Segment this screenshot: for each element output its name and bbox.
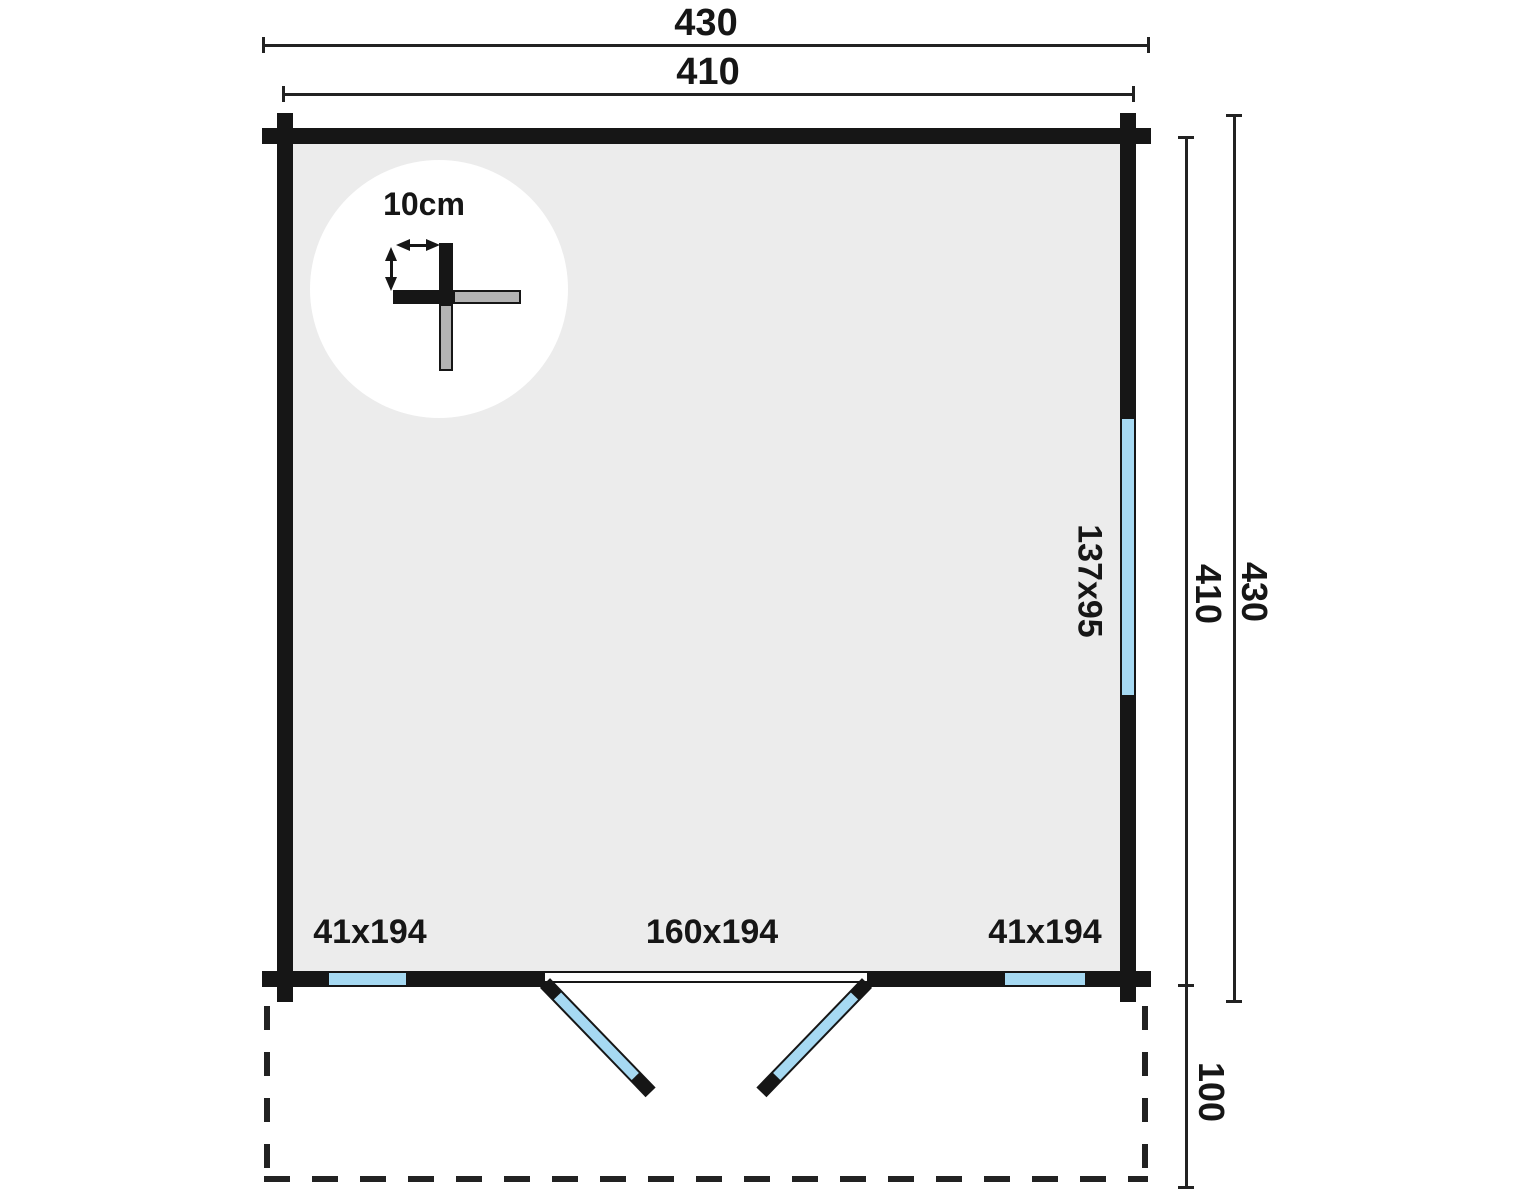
- detail-arrow-vertical: [385, 247, 398, 291]
- detail-log-gray-vertical: [439, 304, 453, 371]
- door-leaf-right-glass: [773, 992, 858, 1080]
- dim-top-outer-line: [263, 44, 1149, 47]
- terrace-outline-right: [1142, 1006, 1148, 1182]
- corner-log-bottom-right-down: [1120, 987, 1136, 1002]
- window-bottom-right-glass: [1003, 971, 1087, 987]
- detail-log-dark-horizontal: [393, 290, 453, 304]
- dim-tick: [262, 37, 265, 53]
- corner-log-bottom-left-out: [262, 971, 277, 987]
- window-side-glass: [1120, 417, 1136, 697]
- label-window-bottom-left: 41x194: [313, 913, 426, 952]
- dim-right-outer-label: 430: [1233, 562, 1275, 622]
- door-leaf-left: [540, 978, 656, 1097]
- dim-tick: [1132, 86, 1135, 102]
- door-leaf-right: [756, 978, 872, 1097]
- corner-log-bottom-right-out: [1136, 971, 1151, 987]
- door-leaf-left-glass: [554, 992, 639, 1080]
- detail-log-gray-horizontal: [453, 290, 521, 304]
- dim-top-inner-label: 410: [676, 51, 739, 94]
- door-threshold-line-top: [545, 971, 867, 973]
- dim-tick: [1226, 114, 1242, 117]
- dim-tick: [1178, 136, 1194, 139]
- detail-thickness-label: 10cm: [354, 186, 494, 223]
- dim-tick: [1147, 37, 1150, 53]
- corner-log-top-left-up: [277, 113, 293, 128]
- dim-tick: [1178, 1186, 1194, 1189]
- dim-right-outer-line: [1233, 115, 1236, 1003]
- corner-log-top-left-out: [262, 128, 277, 144]
- floor-plan-canvas: 10cm 430 410 410 430 100 41x194 160x194 …: [0, 0, 1536, 1193]
- dim-right-inner-label: 410: [1187, 564, 1229, 624]
- dim-tick: [282, 86, 285, 102]
- dim-tick: [1226, 1000, 1242, 1003]
- dim-right-inner-line: [1185, 137, 1188, 985]
- wall-top: [277, 128, 1136, 144]
- label-window-bottom-right: 41x194: [988, 913, 1101, 952]
- dim-top-inner-line: [283, 93, 1134, 96]
- window-bottom-left-glass: [327, 971, 408, 987]
- wall-left: [277, 128, 293, 987]
- label-window-side: 137x95: [1070, 524, 1109, 637]
- dim-top-outer-label: 430: [674, 2, 737, 45]
- terrace-outline-left: [264, 1006, 270, 1182]
- terrace-outline-bottom: [264, 1176, 1148, 1182]
- door-threshold: [545, 971, 867, 987]
- corner-log-top-right-out: [1136, 128, 1151, 144]
- dim-terrace-label: 100: [1190, 1062, 1232, 1122]
- corner-log-top-right-up: [1120, 113, 1136, 128]
- detail-arrow-horizontal: [396, 239, 440, 252]
- door-threshold-line-bottom: [545, 981, 867, 983]
- dim-terrace-line: [1185, 985, 1188, 1188]
- corner-log-bottom-left-down: [277, 987, 293, 1002]
- label-door: 160x194: [646, 913, 778, 952]
